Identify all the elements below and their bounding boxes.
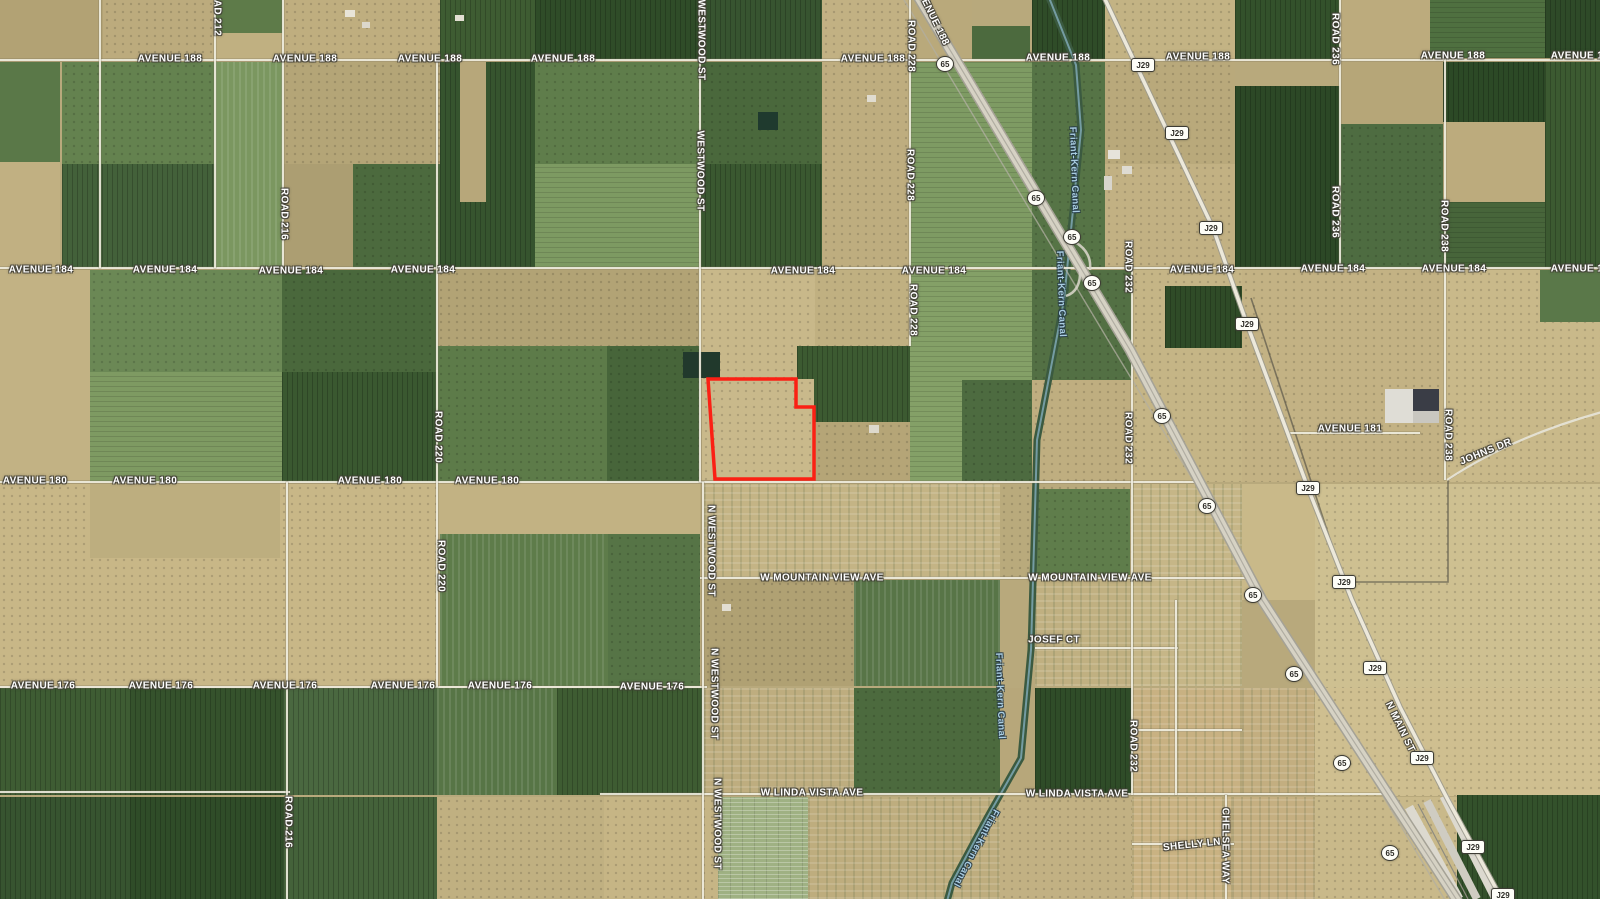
- route-shield-65-icon: 65: [936, 56, 954, 72]
- route-shield-j29-icon: J29: [1410, 751, 1434, 765]
- route-shield-j29-icon: J29: [1363, 661, 1387, 675]
- satellite-map-canvas[interactable]: AVENUE 188AVENUE 188AVENUE 188AVENUE 188…: [0, 0, 1600, 899]
- route-shield-65-icon: 65: [1063, 229, 1081, 245]
- route-shield-65-icon: 65: [1244, 587, 1262, 603]
- route-shield-j29-icon: J29: [1491, 888, 1515, 899]
- route-shield-65-icon: 65: [1381, 845, 1399, 861]
- route-shield-65-icon: 65: [1153, 408, 1171, 424]
- route-shield-j29-icon: J29: [1461, 840, 1485, 854]
- route-shield-65-icon: 65: [1285, 666, 1303, 682]
- route-shield-65-icon: 65: [1083, 275, 1101, 291]
- route-shield-65-icon: 65: [1198, 498, 1216, 514]
- route-shields-layer: 65656565656565656565J29J29J29J29J29J29J2…: [0, 0, 1600, 899]
- route-shield-j29-icon: J29: [1332, 575, 1356, 589]
- route-shield-j29-icon: J29: [1131, 58, 1155, 72]
- route-shield-65-icon: 65: [1027, 190, 1045, 206]
- route-shield-j29-icon: J29: [1199, 221, 1223, 235]
- route-shield-65-icon: 65: [1333, 755, 1351, 771]
- route-shield-j29-icon: J29: [1296, 481, 1320, 495]
- route-shield-j29-icon: J29: [1165, 126, 1189, 140]
- route-shield-j29-icon: J29: [1235, 317, 1259, 331]
